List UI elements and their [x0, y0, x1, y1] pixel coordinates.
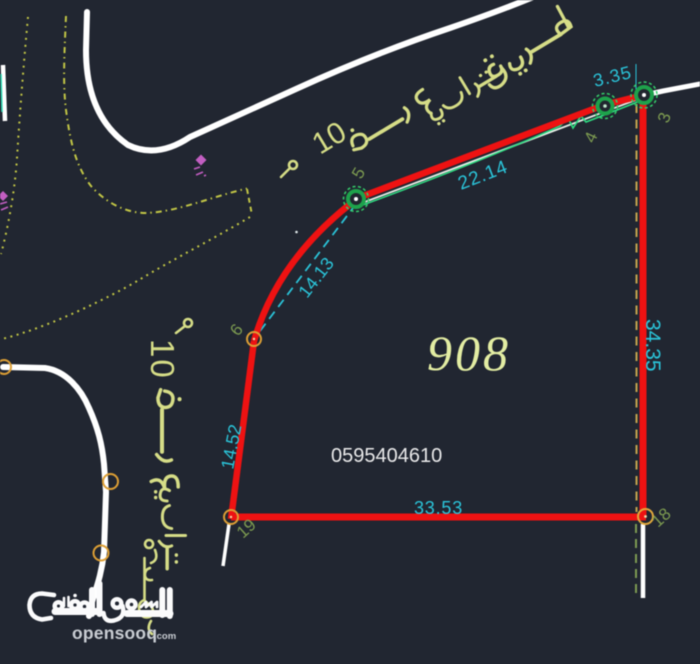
svg-text:3: 3 — [654, 110, 675, 125]
svg-text:34.35: 34.35 — [641, 319, 664, 372]
svg-text:33.53: 33.53 — [414, 498, 463, 518]
svg-text:6: 6 — [226, 320, 247, 339]
svg-text:10: 10 — [144, 339, 181, 380]
svg-text:0595404610: 0595404610 — [331, 445, 442, 467]
svg-text:4: 4 — [580, 129, 601, 146]
svg-text:10: 10 — [307, 116, 353, 161]
svg-text:908: 908 — [427, 325, 511, 381]
svg-text:22.14: 22.14 — [455, 157, 511, 195]
svg-text:opensooq: opensooq — [72, 623, 157, 643]
svg-text:18: 18 — [648, 504, 675, 531]
svg-text:3.35: 3.35 — [591, 62, 634, 91]
svg-text:5: 5 — [348, 164, 369, 182]
svg-text:.com: .com — [154, 631, 176, 642]
